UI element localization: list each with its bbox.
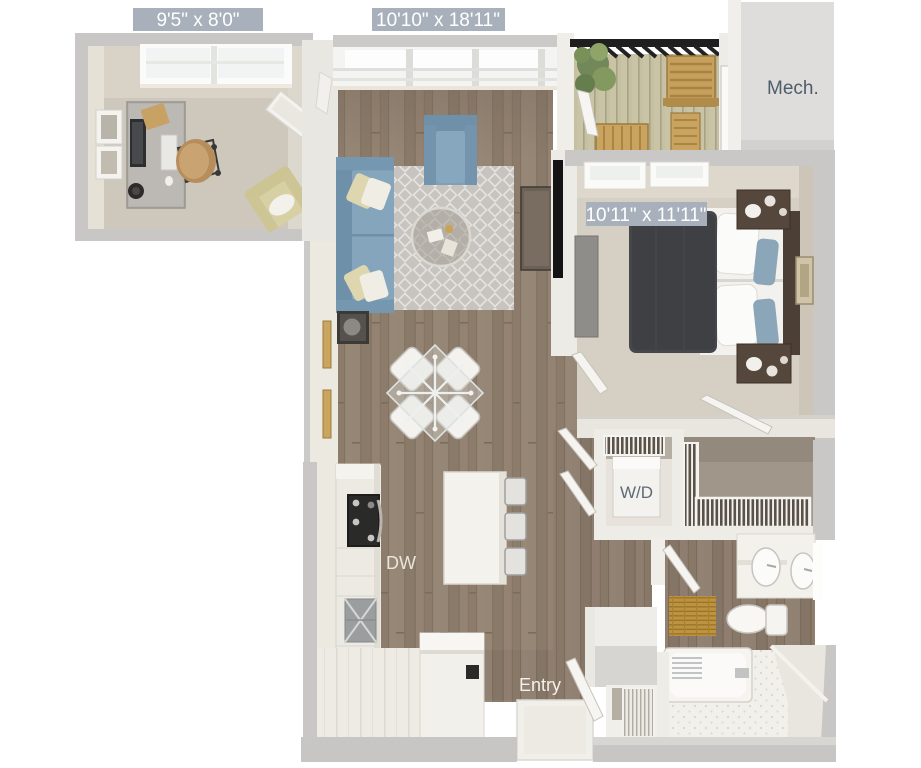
svg-text:10'10" x 18'11": 10'10" x 18'11" [376, 10, 500, 31]
svg-text:9'5" x 8'0": 9'5" x 8'0" [156, 10, 239, 31]
svg-text:10'11" x 11'11": 10'11" x 11'11" [585, 205, 706, 226]
svg-text:DW: DW [386, 553, 416, 573]
svg-text:Entry: Entry [519, 675, 561, 695]
svg-text:Mech.: Mech. [767, 78, 819, 99]
svg-text:W/D: W/D [620, 483, 653, 502]
